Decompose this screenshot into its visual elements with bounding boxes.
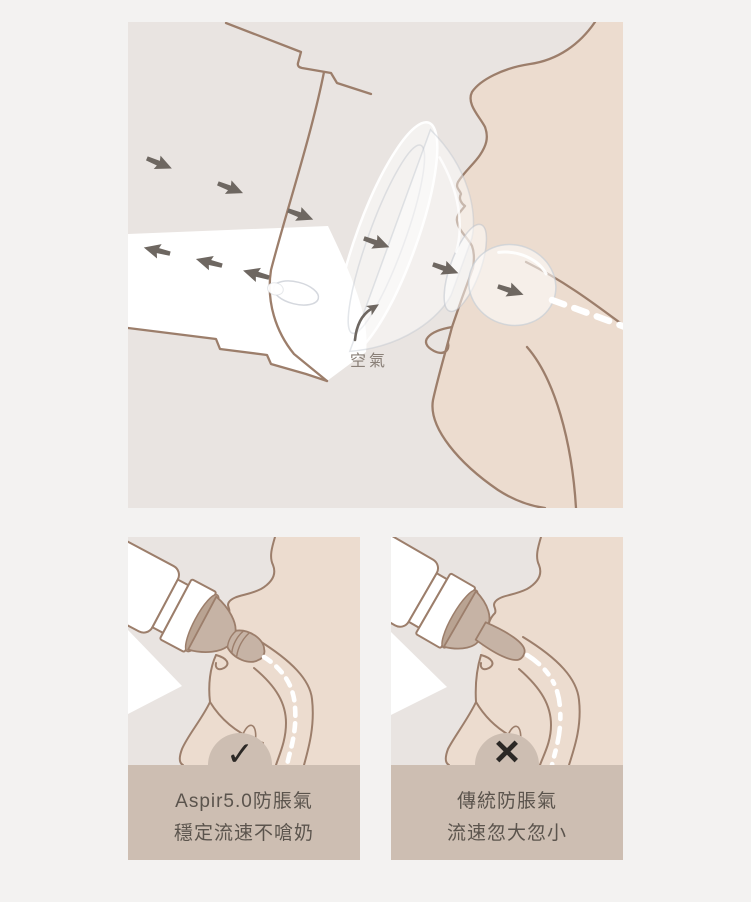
comparison-panel-aspir: ✓ Aspir5.0防脹氣 穩定流速不嗆奶	[128, 537, 360, 860]
cross-icon: ×	[479, 730, 535, 774]
air-label: 空氣	[350, 347, 450, 371]
airflow-illustration	[128, 22, 623, 508]
caption-line2: 流速忽大忽小	[391, 818, 623, 845]
caption-line2: 穩定流速不嗆奶	[128, 818, 360, 845]
comparison-panel-traditional: × 傳統防脹氣 流速忽大忽小	[391, 537, 623, 860]
check-icon: ✓	[212, 736, 268, 772]
airflow-diagram-panel: 空氣	[128, 22, 623, 508]
caption-line1: Aspir5.0防脹氣	[128, 786, 360, 813]
caption-line1: 傳統防脹氣	[391, 786, 623, 813]
